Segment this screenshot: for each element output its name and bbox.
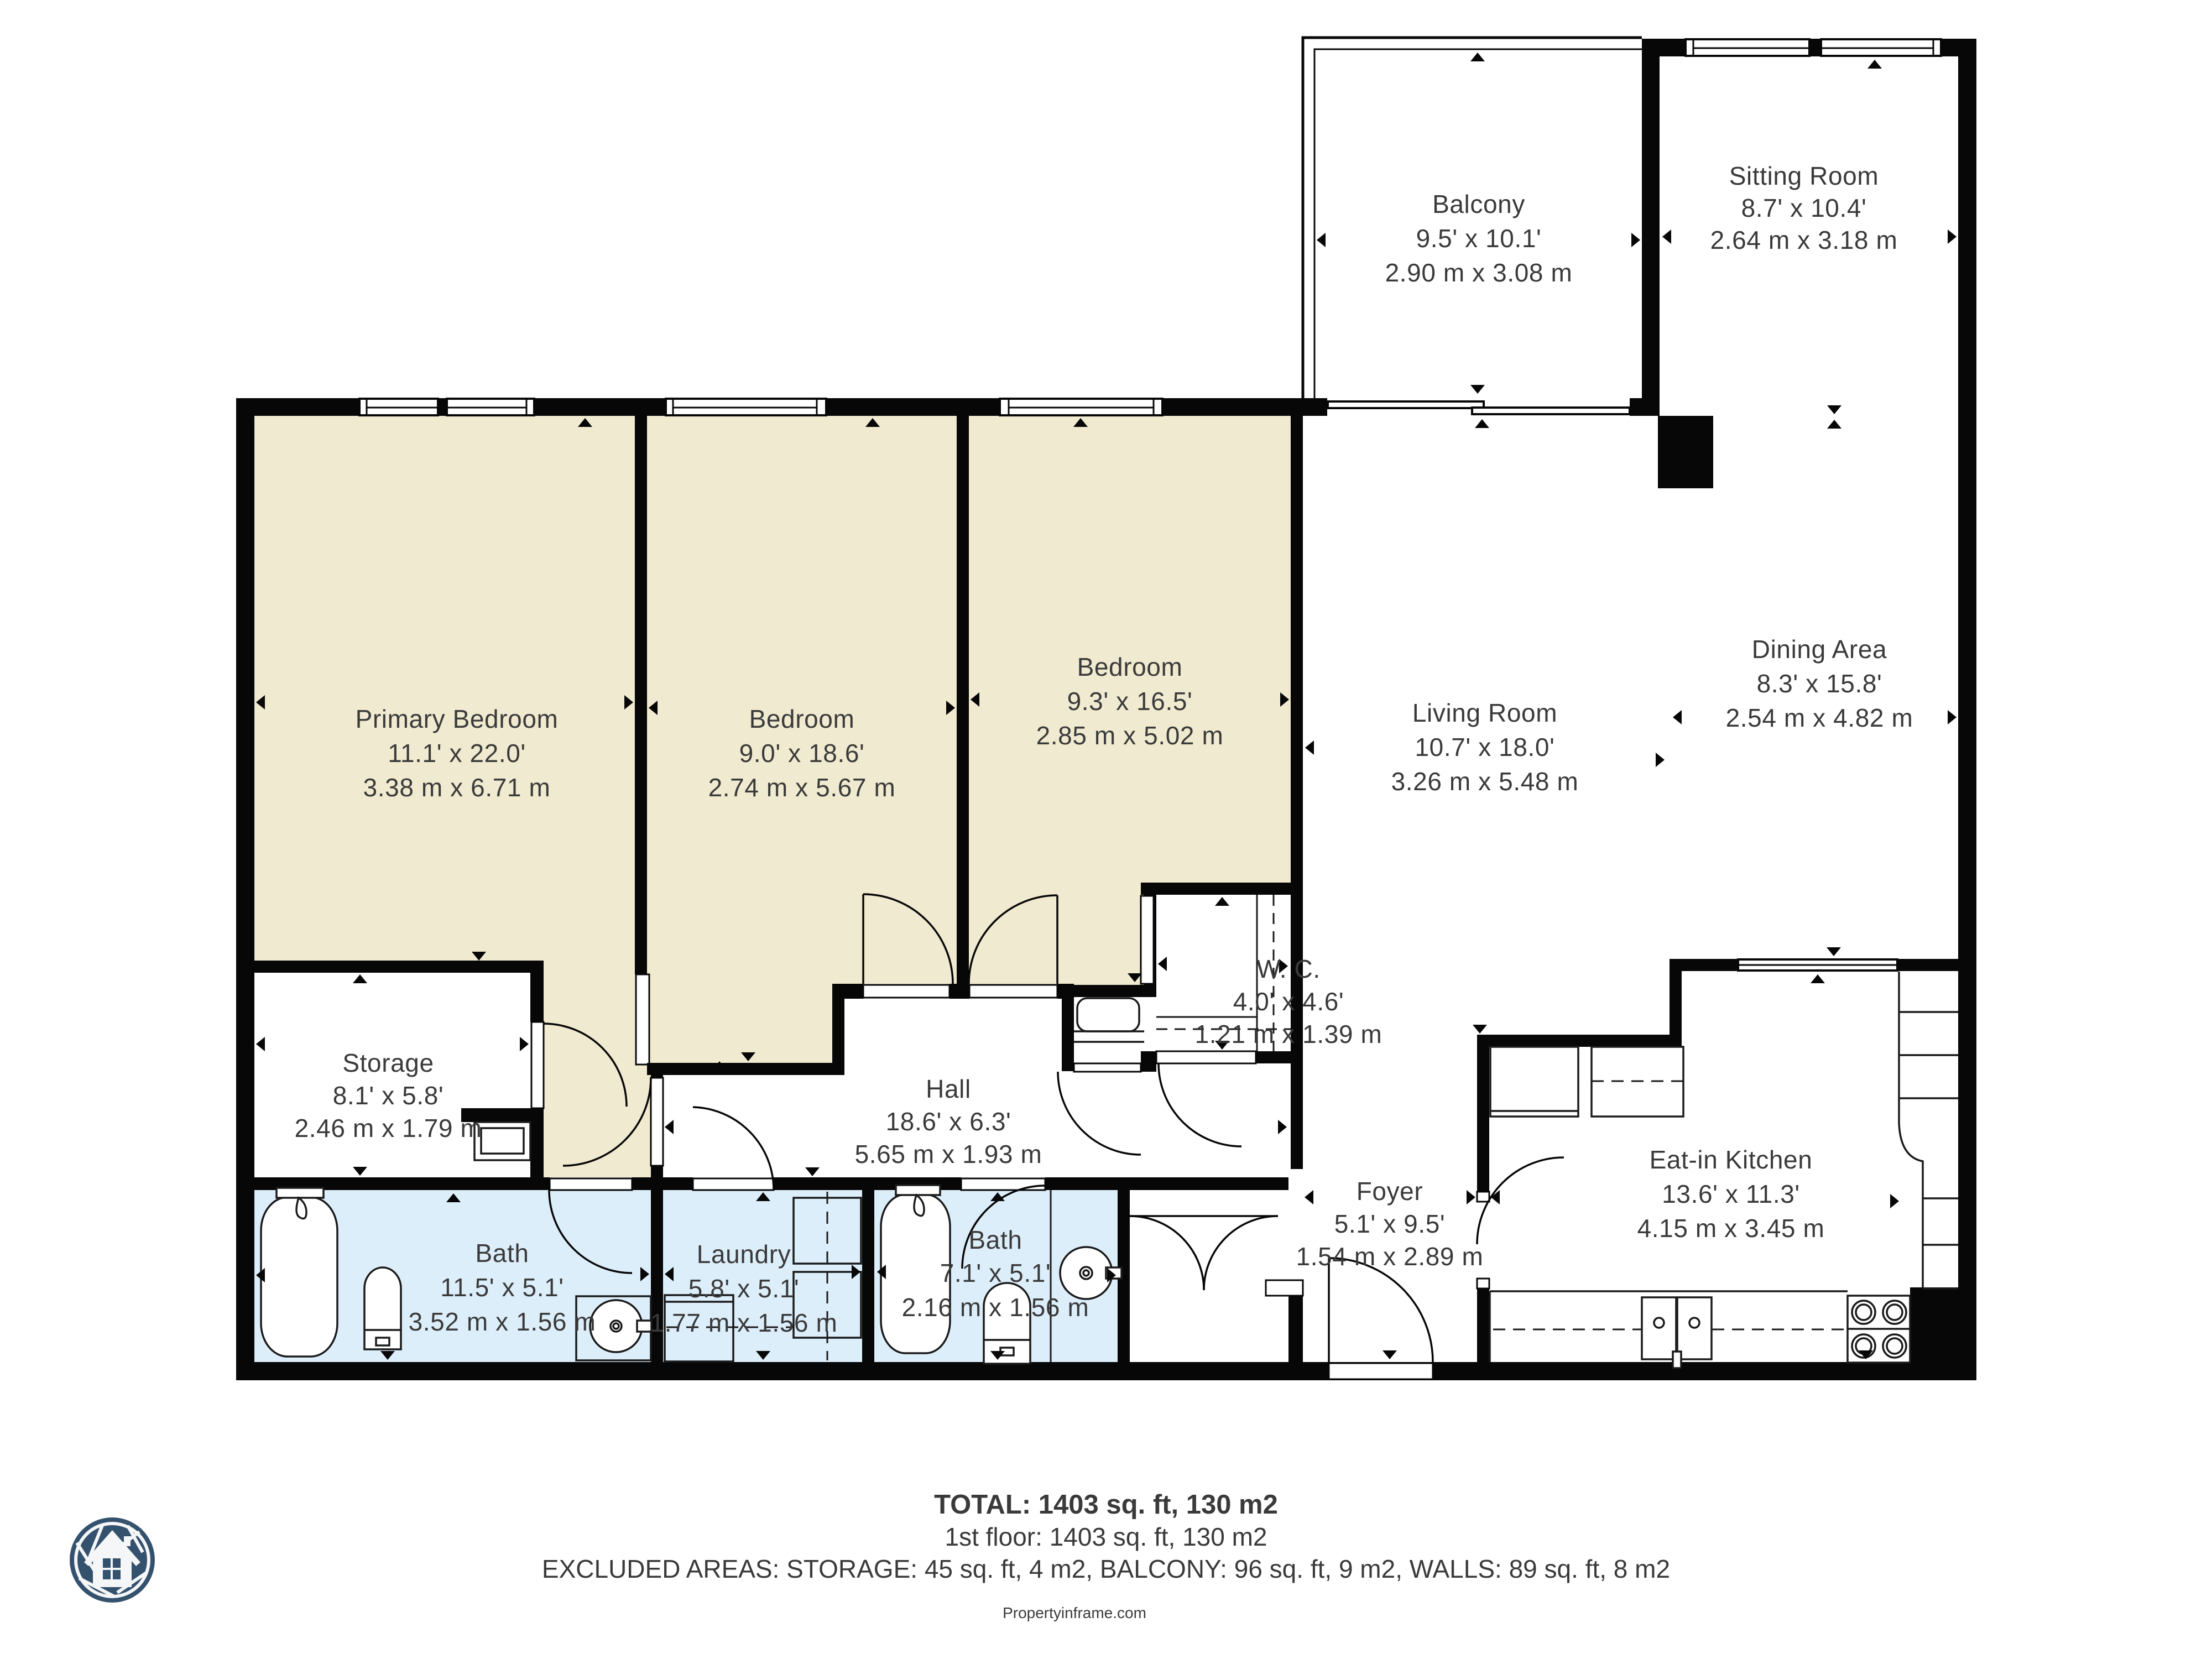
svg-text:Bedroom: Bedroom — [749, 705, 855, 733]
svg-text:2.46 m x 1.79 m: 2.46 m x 1.79 m — [295, 1114, 482, 1142]
svg-text:Bedroom: Bedroom — [1077, 653, 1183, 681]
svg-text:Storage: Storage — [342, 1048, 434, 1077]
svg-text:1.21 m x 1.39 m: 1.21 m x 1.39 m — [1195, 1020, 1383, 1048]
svg-text:9.3' x 16.5': 9.3' x 16.5' — [1067, 687, 1193, 716]
svg-text:1st floor: 1403 sq. ft, 130 m2: 1st floor: 1403 sq. ft, 130 m2 — [945, 1522, 1267, 1551]
svg-text:8.3' x 15.8': 8.3' x 15.8' — [1757, 669, 1882, 698]
svg-text:9.5' x 10.1': 9.5' x 10.1' — [1416, 224, 1542, 253]
svg-text:Balcony: Balcony — [1432, 190, 1525, 218]
svg-text:10.7' x 18.0': 10.7' x 18.0' — [1415, 733, 1555, 761]
svg-text:Bath: Bath — [475, 1239, 529, 1267]
svg-text:2.54 m x 4.82 m: 2.54 m x 4.82 m — [1726, 703, 1913, 732]
svg-text:2.64 m x 3.18 m: 2.64 m x 3.18 m — [1710, 226, 1898, 254]
svg-text:5.65 m x 1.93 m: 5.65 m x 1.93 m — [855, 1140, 1042, 1168]
svg-text:2.74 m x 5.67 m: 2.74 m x 5.67 m — [708, 773, 896, 802]
svg-text:8.7' x 10.4': 8.7' x 10.4' — [1741, 194, 1867, 222]
svg-text:TOTAL: 1403 sq. ft, 130 m2: TOTAL: 1403 sq. ft, 130 m2 — [934, 1490, 1278, 1520]
svg-text:Dining Area: Dining Area — [1752, 635, 1887, 664]
svg-text:Hall: Hall — [926, 1074, 971, 1103]
svg-text:2.90 m x 3.08 m: 2.90 m x 3.08 m — [1385, 258, 1573, 287]
svg-text:8.1' x 5.8': 8.1' x 5.8' — [333, 1081, 444, 1110]
svg-text:Sitting Room: Sitting Room — [1729, 161, 1879, 190]
svg-text:W. C.: W. C. — [1256, 954, 1320, 983]
svg-text:Propertyinframe.com: Propertyinframe.com — [1003, 1604, 1146, 1621]
svg-text:4.0' x 4.6': 4.0' x 4.6' — [1233, 987, 1344, 1016]
svg-text:11.5' x 5.1': 11.5' x 5.1' — [440, 1273, 564, 1302]
svg-text:Living Room: Living Room — [1412, 698, 1557, 727]
svg-text:Primary Bedroom: Primary Bedroom — [356, 705, 559, 733]
svg-text:Laundry: Laundry — [697, 1240, 791, 1269]
svg-text:7.1' x 5.1': 7.1' x 5.1' — [940, 1259, 1051, 1287]
svg-text:3.38 m x 6.71 m: 3.38 m x 6.71 m — [363, 773, 551, 802]
svg-text:4.15 m x 3.45 m: 4.15 m x 3.45 m — [1637, 1214, 1825, 1243]
svg-text:3.26 m x 5.48 m: 3.26 m x 5.48 m — [1391, 767, 1579, 796]
svg-text:13.6' x 11.3': 13.6' x 11.3' — [1662, 1180, 1800, 1208]
svg-text:5.1' x 9.5': 5.1' x 9.5' — [1334, 1209, 1446, 1238]
svg-text:1.77 m x 1.56 m: 1.77 m x 1.56 m — [650, 1308, 838, 1337]
svg-text:Eat-in Kitchen: Eat-in Kitchen — [1650, 1145, 1813, 1174]
svg-text:3.52 m x 1.56 m: 3.52 m x 1.56 m — [409, 1307, 596, 1336]
svg-text:9.0' x 18.6': 9.0' x 18.6' — [739, 739, 865, 768]
svg-text:18.6' x 6.3': 18.6' x 6.3' — [886, 1107, 1011, 1136]
svg-text:Foyer: Foyer — [1357, 1177, 1423, 1206]
svg-text:2.16 m x 1.56 m: 2.16 m x 1.56 m — [902, 1293, 1089, 1322]
svg-text:1.54 m x 2.89 m: 1.54 m x 2.89 m — [1296, 1242, 1484, 1271]
svg-text:2.85 m x 5.02 m: 2.85 m x 5.02 m — [1036, 721, 1224, 750]
svg-text:EXCLUDED AREAS: STORAGE: 45 sq: EXCLUDED AREAS: STORAGE: 45 sq. ft, 4 m2… — [542, 1554, 1670, 1583]
svg-text:5.8' x 5.1': 5.8' x 5.1' — [688, 1274, 800, 1303]
svg-text:11.1' x 22.0': 11.1' x 22.0' — [388, 739, 526, 768]
svg-text:Bath: Bath — [968, 1225, 1022, 1254]
